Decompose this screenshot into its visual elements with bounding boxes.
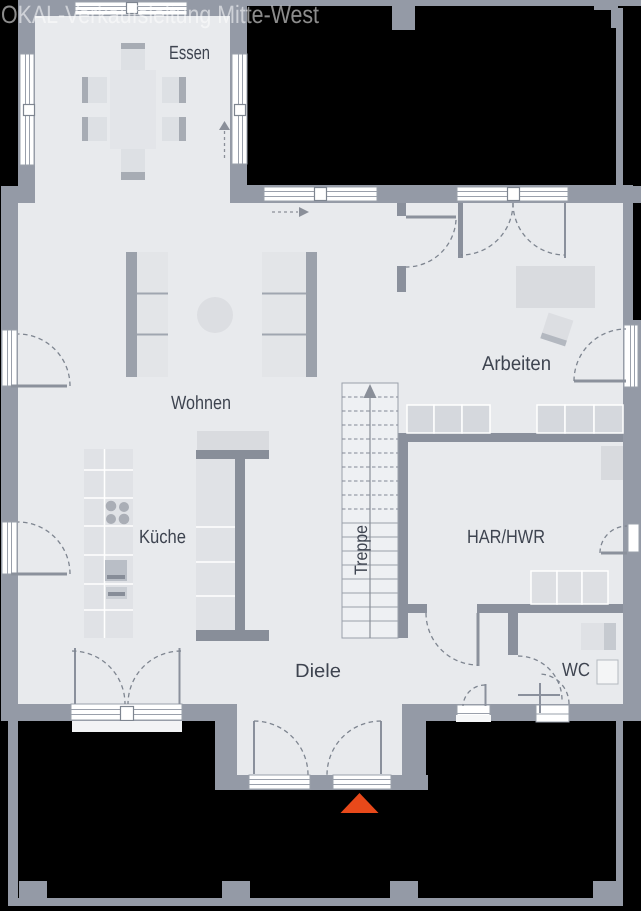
svg-text:Wohnen: Wohnen <box>171 393 231 414</box>
svg-text:Küche: Küche <box>139 527 186 548</box>
svg-text:Diele: Diele <box>295 661 341 682</box>
svg-text:Treppe: Treppe <box>351 525 371 575</box>
svg-text:WC: WC <box>562 660 590 681</box>
svg-text:OKAL-Verkaufsleitung Mitte-Wes: OKAL-Verkaufsleitung Mitte-West <box>1 1 319 29</box>
svg-text:Arbeiten: Arbeiten <box>482 353 551 375</box>
svg-text:Essen: Essen <box>169 43 210 64</box>
svg-text:HAR/HWR: HAR/HWR <box>467 527 545 548</box>
